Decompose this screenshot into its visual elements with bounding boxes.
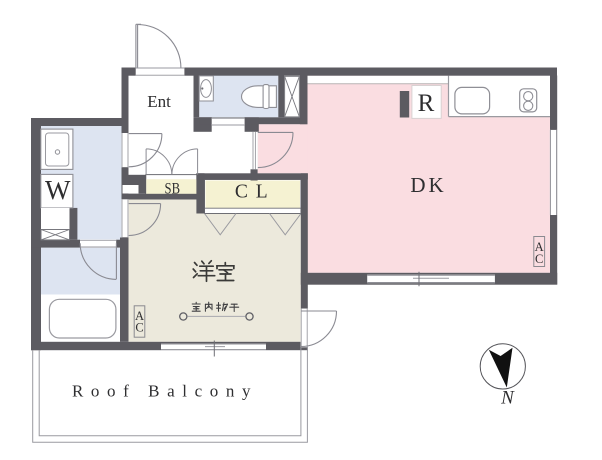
- svg-text:C: C: [135, 321, 143, 335]
- svg-text:C: C: [535, 252, 543, 266]
- svg-text:Roof Balcony: Roof Balcony: [72, 382, 258, 401]
- svg-text:C L: C L: [235, 181, 269, 202]
- svg-text:N: N: [500, 388, 515, 409]
- svg-text:R: R: [418, 90, 435, 117]
- svg-text:W: W: [45, 175, 71, 205]
- svg-text:Ent: Ent: [147, 92, 171, 111]
- svg-text:DK: DK: [410, 173, 446, 197]
